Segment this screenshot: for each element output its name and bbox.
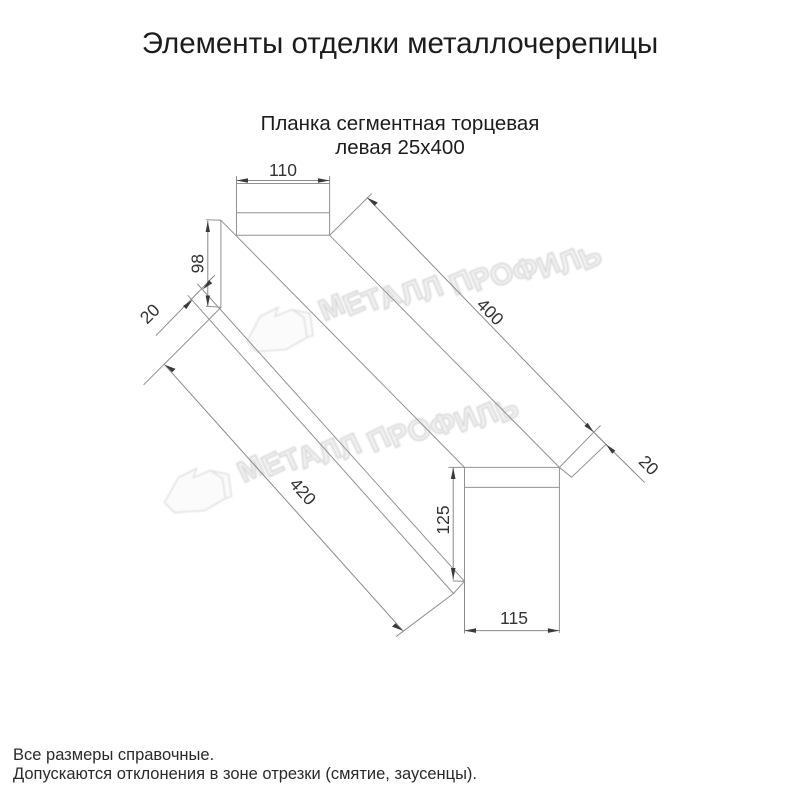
svg-text:Элементы отделки металлочерепи: Элементы отделки металлочерепицы: [142, 27, 658, 60]
svg-text:110: 110: [269, 160, 297, 180]
svg-text:125: 125: [433, 505, 453, 534]
svg-text:115: 115: [500, 608, 528, 628]
svg-text:Все размеры справочные.: Все размеры справочные.: [13, 746, 214, 764]
svg-text:левая 25х400: левая 25х400: [335, 136, 464, 159]
svg-text:Планка сегментная торцевая: Планка сегментная торцевая: [261, 112, 540, 135]
svg-text:Допускаются отклонения в зоне: Допускаются отклонения в зоне отрезки (с…: [13, 765, 477, 783]
svg-text:98: 98: [188, 254, 208, 273]
